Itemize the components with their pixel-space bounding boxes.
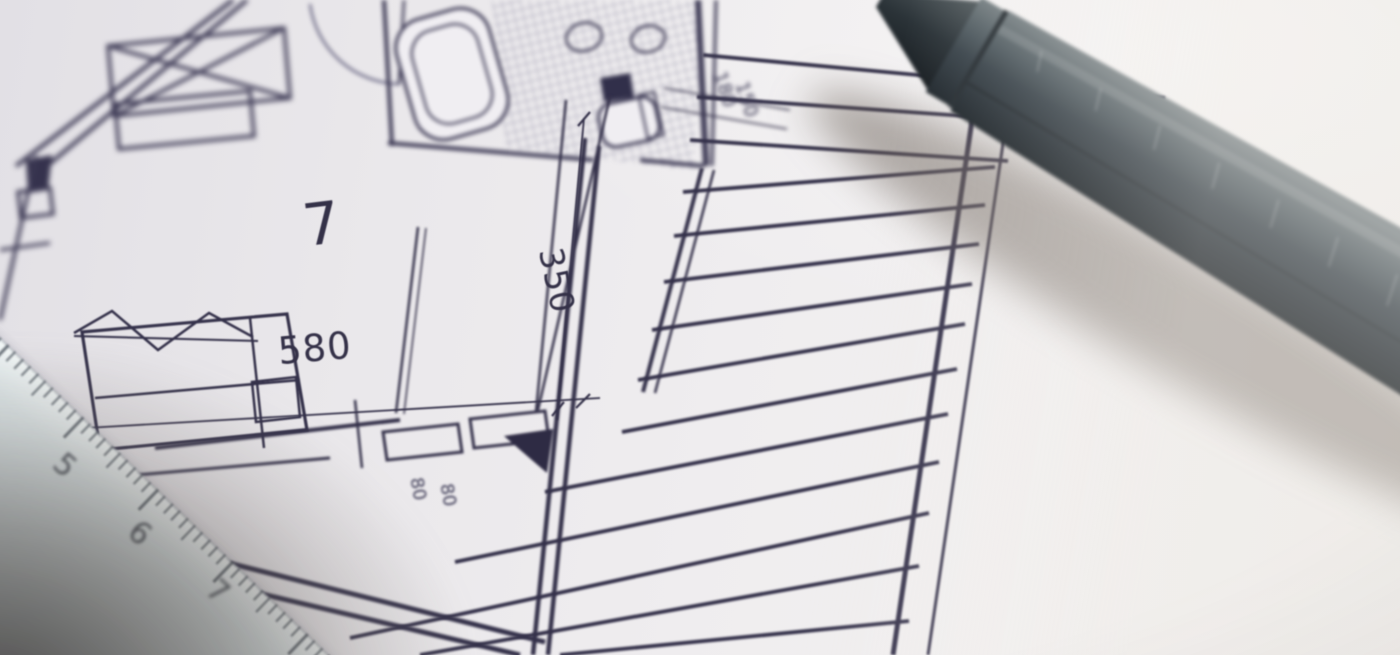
ruler-tick — [0, 344, 10, 366]
ruler-tick — [103, 445, 113, 456]
ruler-tick — [283, 619, 293, 630]
ruler-tick — [6, 351, 16, 362]
ruler-tick — [313, 648, 323, 655]
ruler-tick — [208, 546, 218, 557]
ruler-tick — [290, 626, 300, 637]
ruler-tick — [133, 474, 143, 485]
ruler-tick — [118, 460, 128, 471]
ruler-tick — [268, 604, 278, 615]
ruler-tick — [178, 518, 188, 529]
ruler-tick — [155, 496, 165, 507]
ruler-tick — [43, 387, 53, 398]
ruler-tick — [88, 431, 98, 442]
ruler-tick — [170, 510, 180, 521]
ruler-tick — [305, 640, 315, 651]
ruler-tick — [253, 590, 263, 601]
ruler-tick — [66, 409, 76, 420]
ruler-tick — [106, 452, 121, 468]
ruler-tick — [28, 373, 38, 384]
ruler-tick — [163, 503, 173, 514]
ruler-tick — [181, 525, 196, 541]
ruler-tick — [245, 583, 255, 594]
ruler-tick — [58, 402, 68, 413]
ruler-tick — [126, 467, 136, 478]
ruler-tick — [255, 597, 270, 613]
ruler-tick — [31, 380, 46, 396]
ruler-tick — [21, 366, 31, 377]
ruler-tick — [13, 359, 23, 370]
ruler-tick — [51, 395, 61, 406]
ruler-tick — [193, 532, 203, 543]
ruler-tick — [275, 611, 285, 622]
ruler-tick — [81, 424, 91, 435]
ruler-tick — [200, 539, 210, 550]
ruler-tick — [0, 337, 1, 348]
ruler-tick — [96, 438, 106, 449]
ruler-tick — [238, 575, 248, 586]
ruler-tick — [215, 554, 225, 565]
ruler-tick — [230, 568, 240, 579]
ruler-tick — [141, 481, 151, 492]
photo-scene: 7 580 350 180 150 80 80 — [0, 0, 1400, 655]
